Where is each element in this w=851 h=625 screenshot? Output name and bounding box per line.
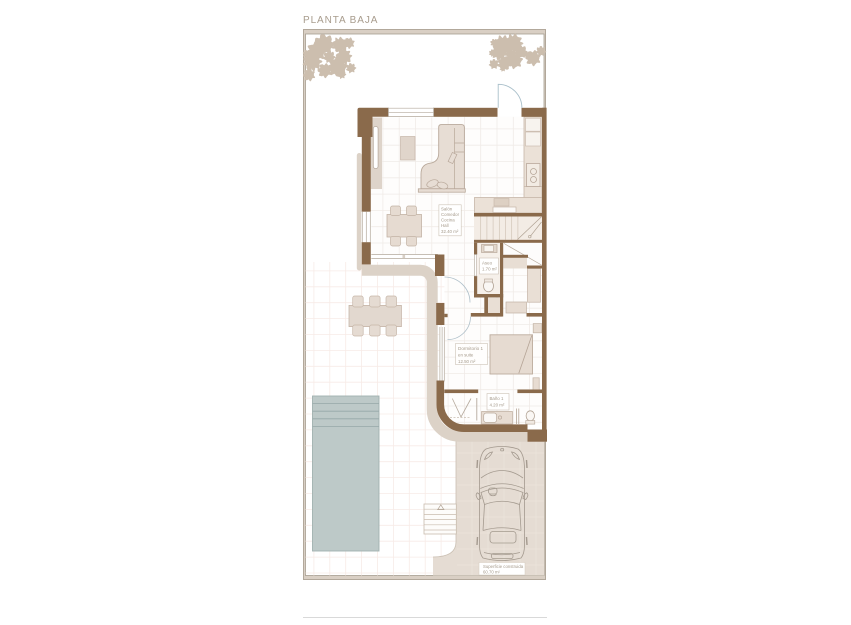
- svg-text:Hall: Hall: [441, 223, 449, 228]
- svg-text:PLANTA BAJA: PLANTA BAJA: [303, 15, 378, 26]
- svg-text:Aseo: Aseo: [482, 261, 493, 266]
- svg-text:Baño 1: Baño 1: [490, 396, 504, 401]
- svg-text:Salón: Salón: [441, 207, 453, 212]
- svg-text:Cocina: Cocina: [441, 218, 455, 223]
- svg-text:1.70 m²: 1.70 m²: [482, 267, 497, 272]
- svg-text:32.40 m²: 32.40 m²: [441, 229, 459, 234]
- svg-text:Superficie construida: Superficie construida: [483, 564, 524, 569]
- svg-text:Comedor: Comedor: [441, 212, 460, 217]
- svg-text:4.20 m²: 4.20 m²: [490, 403, 505, 408]
- svg-text:60.70 m²: 60.70 m²: [483, 570, 501, 575]
- svg-text:Dormitorio 1: Dormitorio 1: [458, 346, 483, 351]
- svg-text:en suite: en suite: [458, 353, 474, 358]
- svg-text:12.50 m²: 12.50 m²: [458, 359, 476, 364]
